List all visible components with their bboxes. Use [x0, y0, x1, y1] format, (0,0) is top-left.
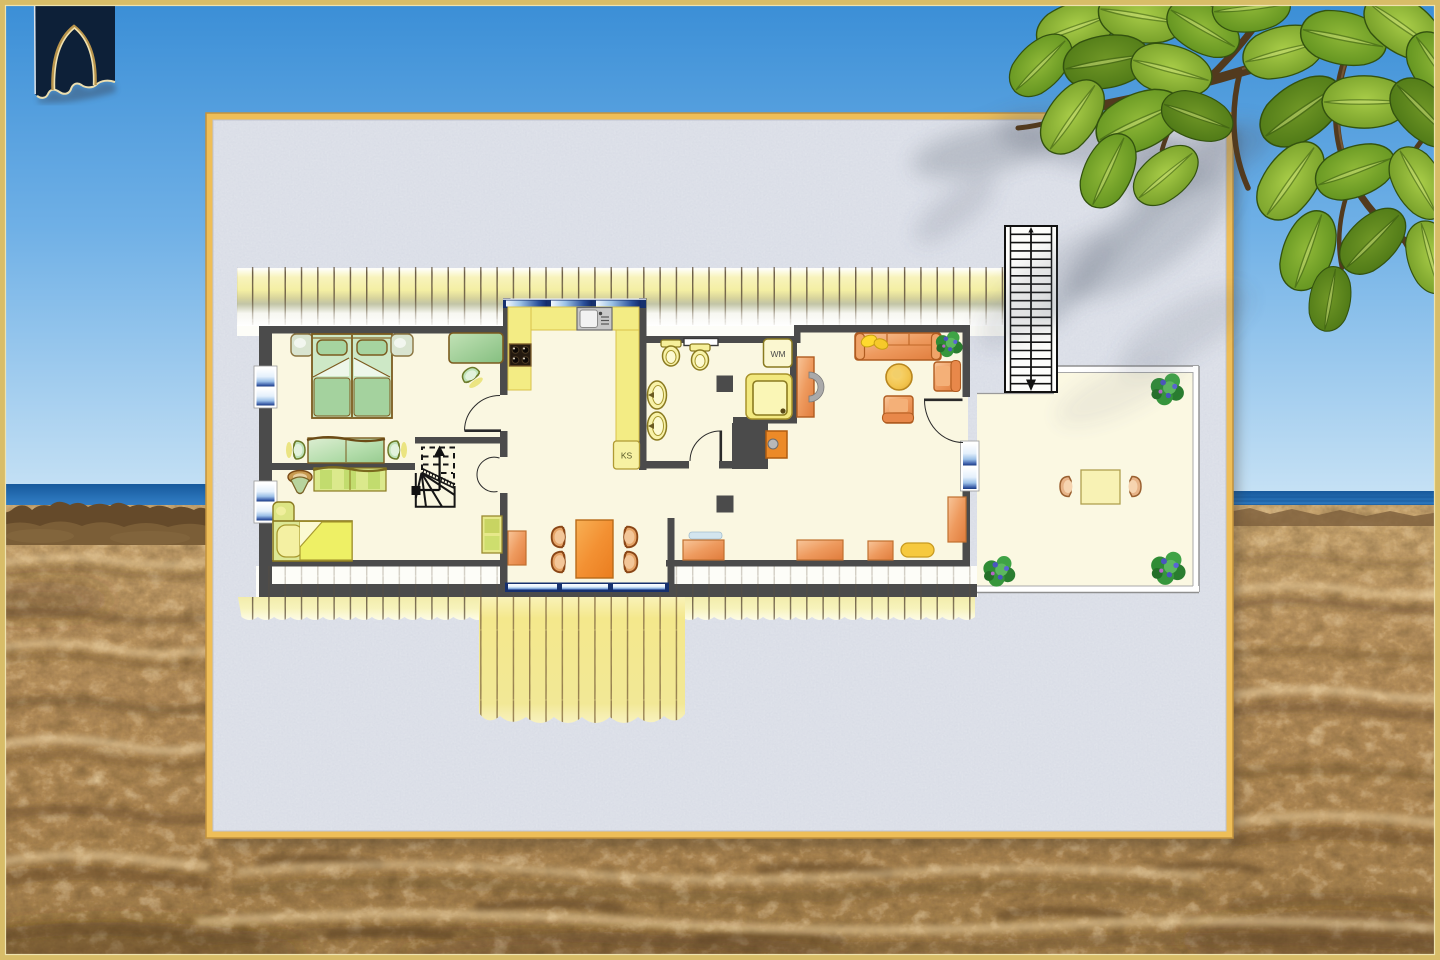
svg-text:WM: WM: [770, 349, 785, 359]
svg-text:KS: KS: [621, 451, 633, 461]
